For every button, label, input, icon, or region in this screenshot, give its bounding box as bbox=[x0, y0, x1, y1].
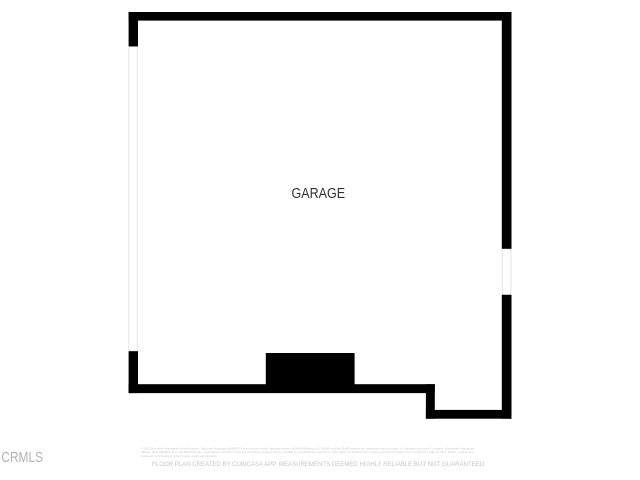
svg-text:independently verify the accur: independently verify the accuracy of tha… bbox=[141, 454, 218, 458]
svg-text:FLOOR PLAN CREATED BY CUBICASA: FLOOR PLAN CREATED BY CUBICASA APP. MEAS… bbox=[152, 461, 486, 468]
svg-text:GARAGE: GARAGE bbox=[292, 186, 346, 202]
svg-text:CRMLS: CRMLS bbox=[1, 450, 43, 466]
